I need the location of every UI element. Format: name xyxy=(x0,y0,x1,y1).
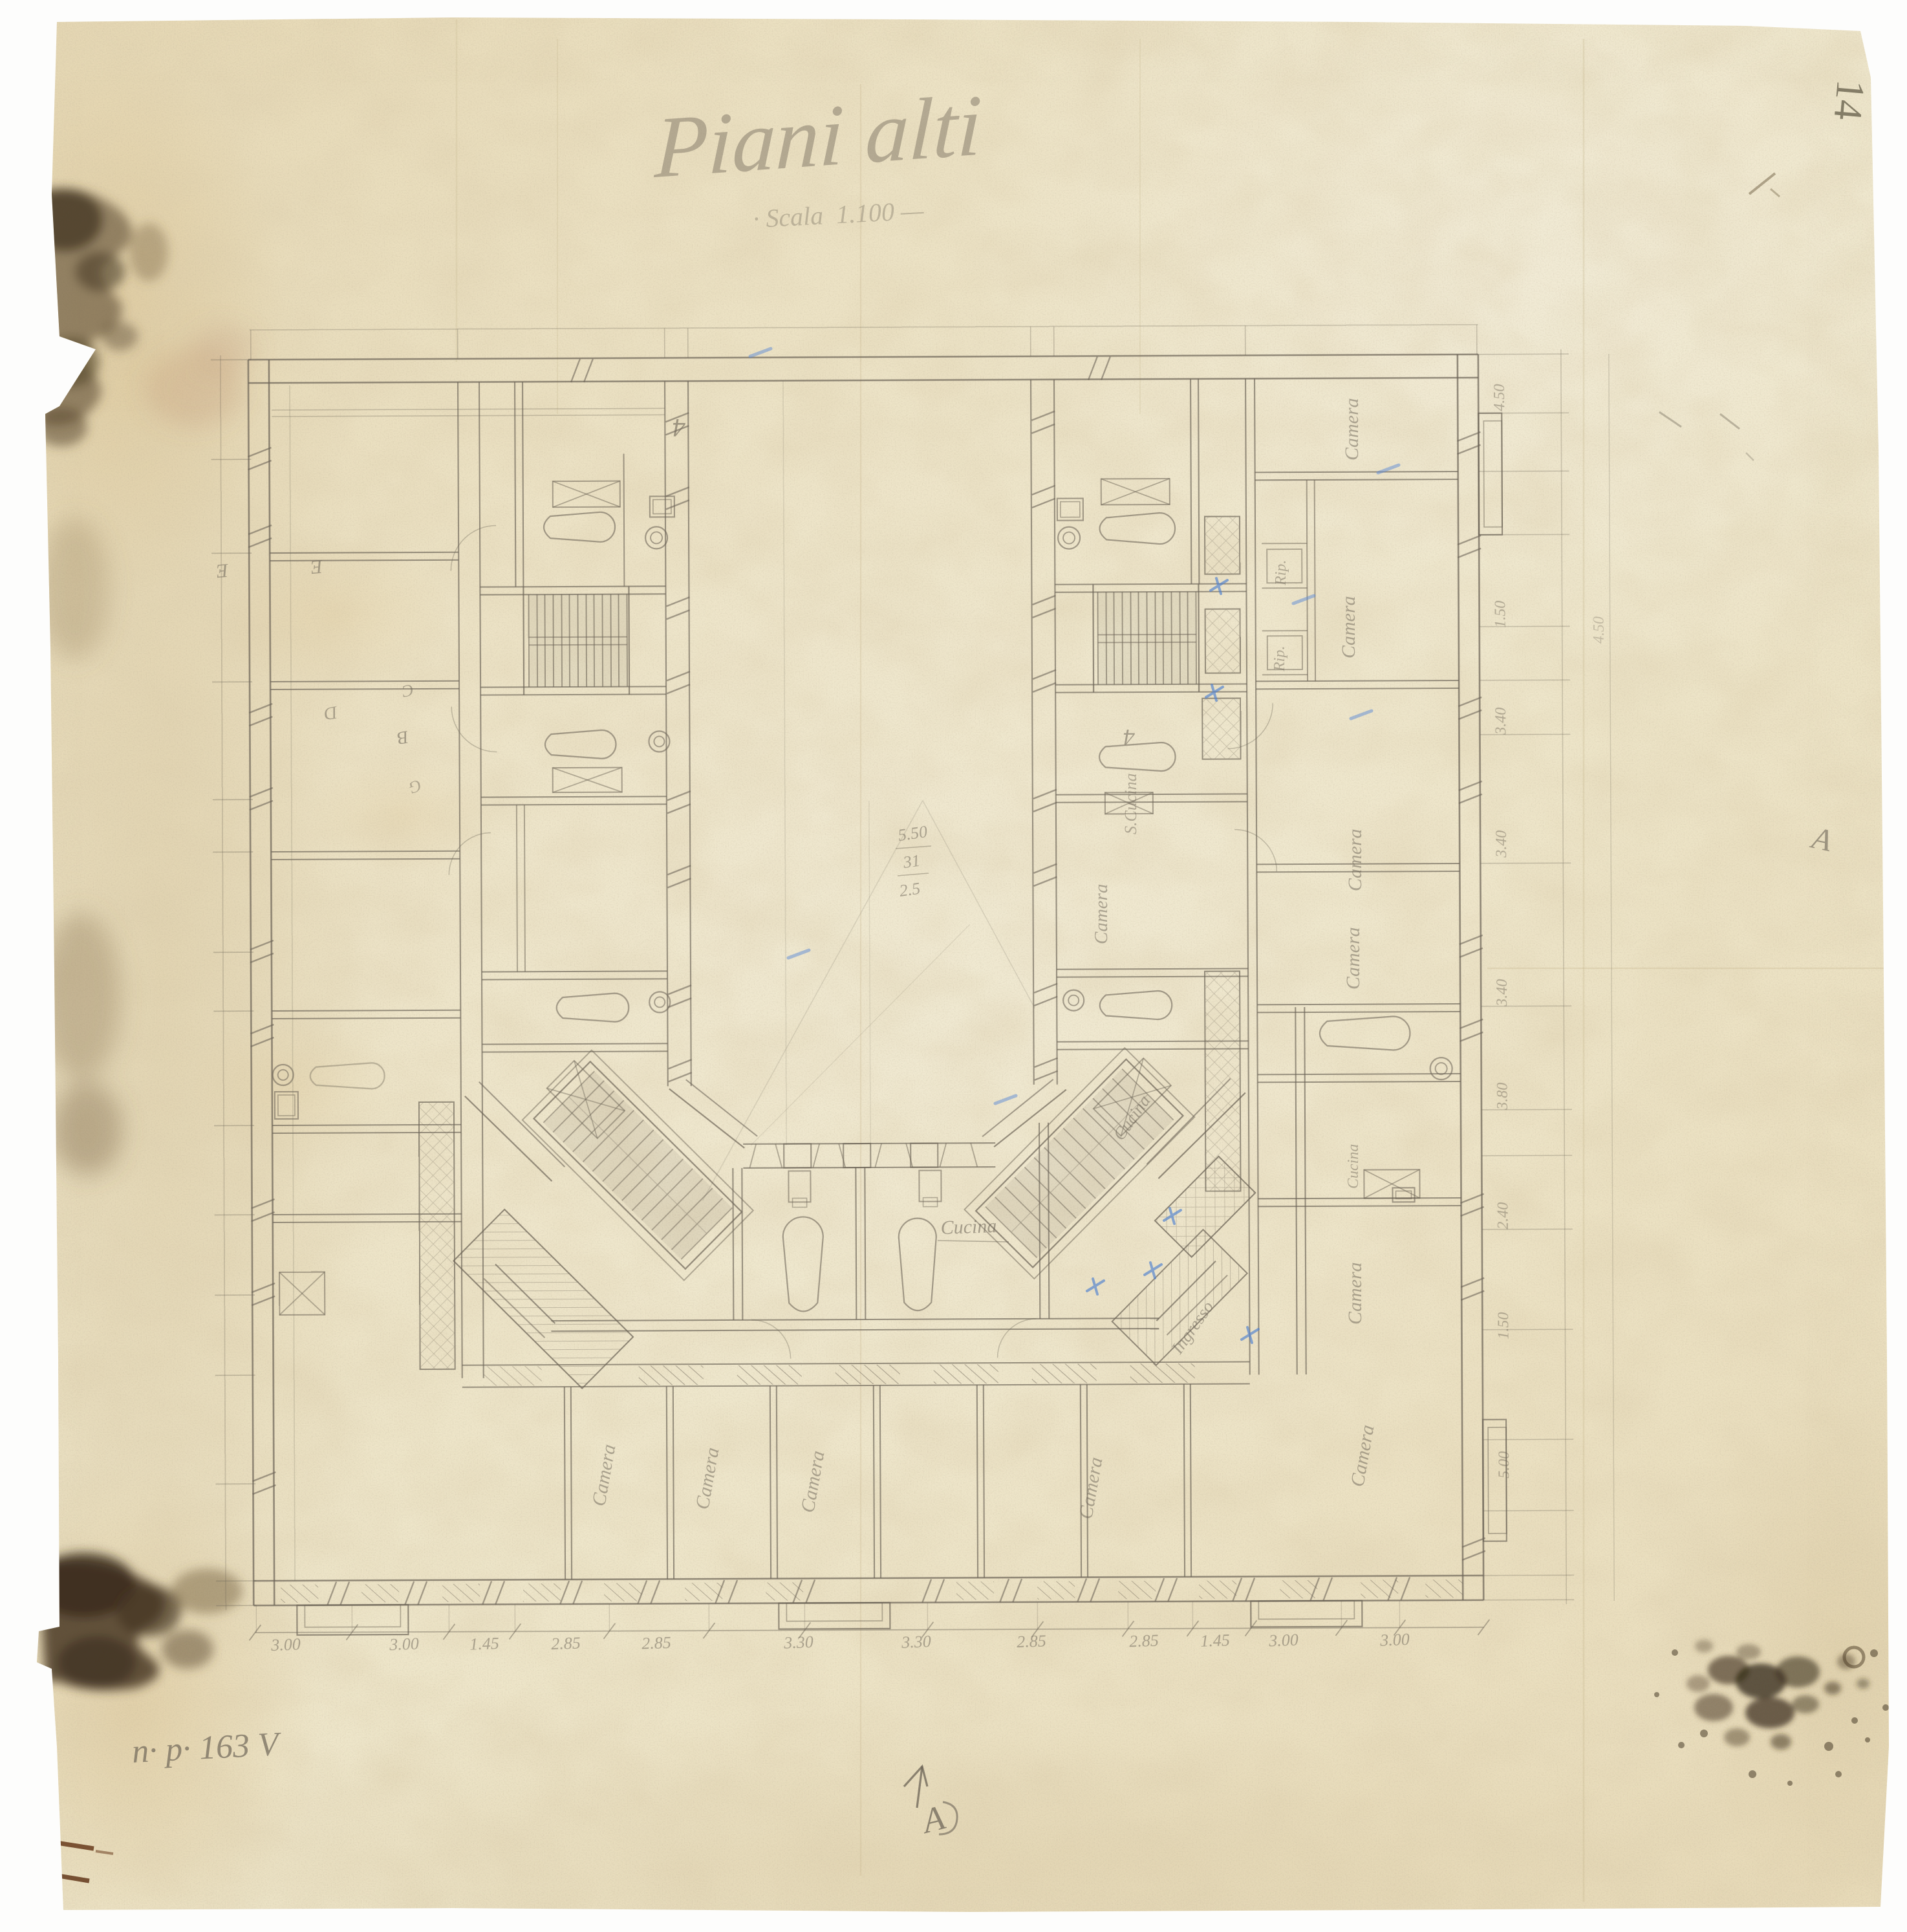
svg-text:2.85: 2.85 xyxy=(641,1633,672,1653)
svg-text:3.00: 3.00 xyxy=(389,1634,420,1654)
svg-text:2.5: 2.5 xyxy=(898,879,921,900)
svg-text:Rip.: Rip. xyxy=(1271,646,1288,672)
svg-text:E: E xyxy=(310,556,324,578)
svg-text:4: 4 xyxy=(673,413,685,442)
svg-text:3.30: 3.30 xyxy=(901,1632,932,1652)
svg-text:Rip.: Rip. xyxy=(1273,560,1289,586)
svg-text:5.00: 5.00 xyxy=(1496,1451,1513,1479)
svg-text:14: 14 xyxy=(1826,78,1873,122)
svg-text:3.40: 3.40 xyxy=(1492,708,1509,735)
svg-text:Camera: Camera xyxy=(1344,1262,1366,1325)
svg-text:Camera: Camera xyxy=(1341,398,1363,461)
svg-text:3.40: 3.40 xyxy=(1494,979,1511,1007)
svg-text:1.45: 1.45 xyxy=(1200,1631,1231,1651)
svg-text:E: E xyxy=(215,559,230,582)
svg-text:3.00: 3.00 xyxy=(1268,1631,1299,1651)
svg-text:Camera: Camera xyxy=(1344,829,1366,891)
svg-text:2.40: 2.40 xyxy=(1495,1202,1512,1230)
svg-text:1.50: 1.50 xyxy=(1495,1312,1512,1340)
svg-text:n· p· 163 V: n· p· 163 V xyxy=(131,1726,283,1770)
svg-text:3.30: 3.30 xyxy=(783,1633,814,1653)
svg-text:3.40: 3.40 xyxy=(1493,830,1510,858)
svg-text:S.Cucina: S.Cucina xyxy=(1121,773,1140,834)
svg-text:Camera: Camera xyxy=(1338,596,1359,658)
svg-text:Camera: Camera xyxy=(1091,884,1112,944)
svg-text:1.50: 1.50 xyxy=(1492,601,1509,628)
svg-text:2.85: 2.85 xyxy=(551,1633,581,1653)
svg-text:3.00: 3.00 xyxy=(1379,1630,1410,1650)
svg-text:4.50: 4.50 xyxy=(1491,384,1508,411)
svg-text:2.85: 2.85 xyxy=(1129,1631,1159,1651)
svg-text:31: 31 xyxy=(901,851,921,872)
svg-text:Camera: Camera xyxy=(1342,927,1364,990)
svg-text:3.00: 3.00 xyxy=(270,1634,301,1655)
svg-text:4: 4 xyxy=(1123,724,1135,750)
svg-text:3.80: 3.80 xyxy=(1494,1083,1511,1111)
svg-text:2.85: 2.85 xyxy=(1017,1631,1047,1651)
svg-text:4.50: 4.50 xyxy=(1591,616,1608,644)
svg-text:1.45: 1.45 xyxy=(469,1634,500,1654)
svg-text:Cucina: Cucina xyxy=(940,1215,997,1239)
svg-text:Cucina: Cucina xyxy=(1345,1144,1362,1189)
